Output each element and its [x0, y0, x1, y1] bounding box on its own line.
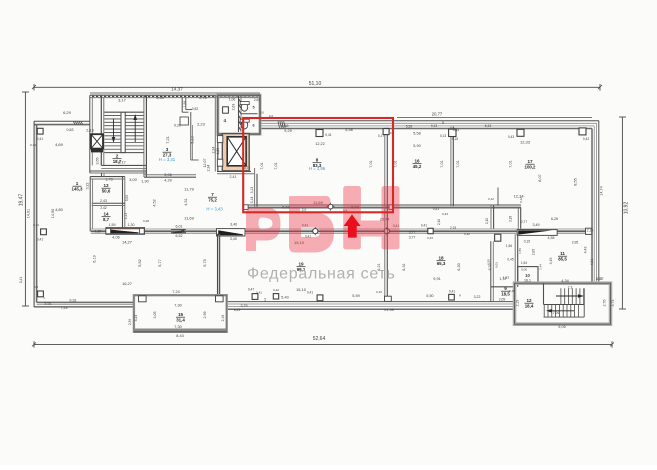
svg-text:12,22: 12,22	[315, 142, 325, 146]
svg-text:10,92: 10,92	[624, 202, 630, 215]
svg-text:0,79: 0,79	[244, 166, 250, 170]
svg-text:4,06: 4,06	[112, 236, 119, 240]
svg-text:3,79: 3,79	[241, 304, 248, 308]
svg-text:4,52: 4,52	[153, 199, 157, 206]
svg-text:5,77: 5,77	[158, 259, 162, 266]
svg-text:7,06: 7,06	[553, 311, 559, 315]
svg-text:6,43: 6,43	[234, 308, 241, 312]
svg-text:1,23: 1,23	[216, 148, 220, 154]
svg-text:2,23: 2,23	[197, 122, 206, 127]
svg-text:2,63: 2,63	[232, 104, 236, 111]
svg-text:11: 11	[560, 251, 565, 256]
svg-text:2,85: 2,85	[532, 249, 536, 256]
svg-text:0,45: 0,45	[509, 289, 515, 293]
svg-text:0,45: 0,45	[507, 257, 513, 261]
svg-text:5,75: 5,75	[203, 259, 207, 266]
svg-text:52,64: 52,64	[313, 336, 326, 342]
svg-text:3,74: 3,74	[611, 300, 615, 307]
svg-text:1,54: 1,54	[521, 261, 527, 265]
svg-text:5: 5	[252, 106, 254, 110]
svg-text:2: 2	[116, 154, 119, 159]
svg-text:1,90: 1,90	[141, 180, 148, 184]
svg-text:51,10: 51,10	[309, 81, 322, 87]
svg-text:11,79: 11,79	[184, 187, 194, 192]
svg-text:2,39: 2,39	[128, 319, 132, 325]
svg-text:0,15: 0,15	[524, 240, 531, 244]
svg-text:7: 7	[211, 192, 214, 197]
svg-text:7,3: 7,3	[568, 286, 573, 290]
svg-text:7,21: 7,21	[165, 135, 170, 144]
svg-text:5,59: 5,59	[352, 294, 359, 298]
svg-text:3,18: 3,18	[509, 216, 513, 222]
svg-text:2,43: 2,43	[100, 199, 107, 203]
svg-text:5,58: 5,58	[345, 128, 352, 132]
svg-text:5,09: 5,09	[125, 195, 129, 201]
svg-text:15: 15	[178, 312, 184, 317]
svg-text:4,69: 4,69	[55, 142, 64, 147]
svg-text:1,59: 1,59	[109, 223, 116, 227]
svg-text:3,05: 3,05	[153, 312, 157, 319]
svg-text:0,13: 0,13	[431, 124, 437, 128]
svg-text:8,55: 8,55	[574, 178, 578, 185]
svg-text:3,17: 3,17	[118, 98, 127, 103]
svg-text:2,15: 2,15	[450, 226, 456, 230]
svg-text:8,43: 8,43	[176, 334, 183, 338]
svg-text:11,69: 11,69	[184, 216, 194, 221]
svg-text:0,41: 0,41	[421, 224, 427, 228]
svg-text:6,29: 6,29	[63, 110, 72, 115]
svg-text:3,13: 3,13	[250, 187, 254, 194]
svg-text:1,06: 1,06	[229, 98, 236, 102]
svg-text:6,52: 6,52	[176, 234, 183, 238]
svg-text:9,91: 9,91	[44, 302, 51, 306]
svg-text:0,17: 0,17	[378, 134, 384, 138]
svg-text:8,7: 8,7	[103, 217, 110, 222]
svg-text:0,42: 0,42	[464, 232, 470, 236]
svg-text:6,19: 6,19	[93, 255, 97, 262]
svg-text:0,16: 0,16	[376, 290, 382, 294]
svg-text:0,42: 0,42	[583, 137, 589, 141]
svg-text:1,57: 1,57	[503, 276, 510, 280]
svg-text:3,14: 3,14	[250, 197, 254, 204]
svg-text:3,77: 3,77	[409, 236, 416, 240]
svg-text:2,10: 2,10	[437, 219, 441, 225]
svg-text:1,59: 1,59	[183, 101, 187, 108]
svg-text:14: 14	[103, 212, 109, 217]
svg-text:H = 2,96: H = 2,96	[309, 166, 326, 171]
svg-text:0,41: 0,41	[30, 143, 36, 147]
svg-text:5,58: 5,58	[413, 132, 420, 136]
svg-text:5,40: 5,40	[281, 295, 288, 299]
svg-text:6,26: 6,26	[551, 217, 558, 221]
svg-text:3,06: 3,06	[164, 173, 171, 177]
svg-text:0,43: 0,43	[427, 236, 433, 240]
svg-text:0,63: 0,63	[67, 128, 74, 132]
svg-text:0,41: 0,41	[37, 238, 43, 242]
svg-text:3,40: 3,40	[230, 237, 237, 241]
svg-text:0,41: 0,41	[256, 290, 262, 294]
svg-text:5,50: 5,50	[426, 294, 433, 298]
svg-text:1,56: 1,56	[506, 244, 512, 248]
svg-text:2,95: 2,95	[572, 241, 579, 245]
svg-text:12,33: 12,33	[520, 140, 531, 145]
svg-text:50,6: 50,6	[102, 188, 111, 193]
svg-text:2,34: 2,34	[207, 165, 211, 172]
svg-text:4,80: 4,80	[55, 207, 64, 212]
svg-text:9,05: 9,05	[558, 325, 565, 329]
svg-text:7,23: 7,23	[61, 306, 68, 310]
svg-text:Федеральная сеть: Федеральная сеть	[247, 266, 396, 283]
svg-text:д: д	[459, 293, 461, 297]
svg-text:7,01: 7,01	[260, 162, 264, 169]
svg-text:10: 10	[525, 273, 530, 278]
svg-text:2,77: 2,77	[521, 220, 527, 224]
svg-text:2,63: 2,63	[254, 98, 260, 102]
svg-text:1,30: 1,30	[128, 223, 135, 227]
svg-text:7,30: 7,30	[174, 325, 181, 329]
svg-text:3,00: 3,00	[129, 177, 138, 182]
svg-text:3,22: 3,22	[474, 295, 481, 299]
svg-text:0,4: 0,4	[34, 285, 39, 289]
svg-text:2,19: 2,19	[587, 229, 594, 233]
svg-text:5,53: 5,53	[282, 205, 289, 209]
svg-text:H = 3,43: H = 3,43	[206, 206, 223, 211]
svg-text:14,27: 14,27	[122, 240, 133, 245]
svg-text:3,14: 3,14	[453, 128, 460, 132]
svg-text:8: 8	[442, 121, 444, 125]
svg-text:14,37: 14,37	[171, 87, 183, 92]
svg-text:0,41: 0,41	[33, 223, 39, 227]
svg-text:8,07: 8,07	[538, 174, 542, 181]
svg-text:8: 8	[316, 158, 319, 163]
svg-text:6,01: 6,01	[176, 225, 183, 229]
svg-text:7,01: 7,01	[394, 160, 398, 167]
svg-text:4,29: 4,29	[164, 179, 171, 183]
svg-text:16,27: 16,27	[122, 281, 133, 286]
svg-text:4: 4	[224, 118, 227, 123]
svg-text:H = 3,31: H = 3,31	[159, 157, 176, 162]
svg-text:1: 1	[76, 181, 79, 186]
svg-text:4,43: 4,43	[584, 247, 588, 254]
svg-text:3,0: 3,0	[260, 111, 265, 115]
svg-text:9,29: 9,29	[284, 129, 291, 133]
svg-text:0,42: 0,42	[273, 288, 279, 292]
svg-text:7,01: 7,01	[274, 162, 278, 169]
svg-text:2,09: 2,09	[499, 297, 506, 301]
svg-text:5,90: 5,90	[413, 144, 420, 148]
svg-text:0,13: 0,13	[440, 134, 446, 138]
svg-text:3,17: 3,17	[118, 161, 125, 165]
svg-text:0,47: 0,47	[248, 288, 254, 292]
svg-text:2,24: 2,24	[212, 147, 216, 154]
svg-text:2,10: 2,10	[485, 218, 489, 224]
svg-text:7,01: 7,01	[509, 160, 513, 167]
svg-text:6,03: 6,03	[495, 262, 499, 268]
svg-text:145,3: 145,3	[72, 186, 84, 191]
svg-text:0,16: 0,16	[452, 137, 458, 141]
svg-text:2,55: 2,55	[487, 259, 491, 265]
svg-text:4,34: 4,34	[561, 279, 568, 283]
svg-text:0,41: 0,41	[449, 289, 455, 293]
svg-text:17: 17	[527, 159, 533, 164]
svg-text:2,19: 2,19	[516, 300, 520, 307]
svg-text:0,12: 0,12	[488, 197, 494, 201]
svg-text:6,31: 6,31	[402, 263, 406, 270]
svg-text:0,43: 0,43	[508, 135, 514, 139]
svg-text:9,91: 9,91	[69, 299, 76, 303]
svg-text:5,58: 5,58	[282, 124, 289, 128]
svg-text:100,2: 100,2	[525, 164, 537, 169]
svg-text:0,41: 0,41	[37, 137, 43, 141]
svg-text:0,41: 0,41	[433, 207, 440, 211]
svg-text:13: 13	[103, 183, 109, 188]
svg-text:5,59: 5,59	[406, 125, 413, 129]
svg-text:7,30: 7,30	[174, 304, 181, 308]
svg-text:14,91: 14,91	[27, 209, 31, 219]
svg-text:1,56: 1,56	[518, 248, 522, 254]
svg-text:7,01: 7,01	[456, 160, 460, 167]
svg-text:5,06: 5,06	[521, 268, 527, 272]
svg-text:3,77: 3,77	[409, 230, 416, 234]
svg-text:1,35: 1,35	[95, 230, 101, 234]
svg-text:2,42: 2,42	[100, 206, 107, 210]
svg-text:6: 6	[252, 124, 254, 128]
svg-text:14,74: 14,74	[600, 186, 604, 196]
svg-text:1,37: 1,37	[596, 277, 603, 281]
svg-text:12: 12	[526, 298, 532, 303]
svg-text:6,30: 6,30	[457, 263, 461, 270]
svg-text:16,1: 16,1	[524, 279, 531, 283]
svg-text:7,01: 7,01	[369, 160, 373, 167]
svg-text:4,31: 4,31	[590, 259, 594, 266]
svg-text:7,24: 7,24	[172, 290, 179, 294]
svg-text:0,12: 0,12	[519, 197, 523, 203]
svg-text:2,75: 2,75	[199, 96, 206, 100]
svg-text:31,4: 31,4	[176, 317, 185, 322]
svg-text:3,23: 3,23	[134, 315, 138, 322]
svg-text:2,41: 2,41	[230, 175, 237, 179]
svg-text:0,52: 0,52	[192, 107, 199, 111]
svg-text:3,33: 3,33	[156, 96, 163, 100]
svg-text:4,55: 4,55	[548, 236, 555, 240]
svg-text:0,28: 0,28	[143, 219, 149, 223]
svg-text:21,98: 21,98	[384, 308, 394, 312]
svg-text:14,90: 14,90	[51, 209, 55, 219]
svg-text:9,22: 9,22	[86, 183, 90, 190]
svg-text:4,45: 4,45	[549, 258, 553, 265]
svg-text:75,2: 75,2	[208, 197, 217, 202]
svg-text:2,99: 2,99	[203, 312, 207, 319]
svg-text:3,65: 3,65	[96, 158, 100, 165]
svg-text:85,5: 85,5	[558, 256, 567, 261]
svg-text:19,47: 19,47	[19, 194, 25, 207]
svg-text:0,41: 0,41	[19, 277, 23, 283]
svg-text:2,13: 2,13	[86, 129, 93, 133]
svg-text:18,4: 18,4	[525, 303, 534, 308]
svg-text:2,0: 2,0	[302, 208, 307, 212]
svg-text:9: 9	[504, 286, 507, 291]
svg-text:4,51: 4,51	[184, 198, 188, 205]
svg-text:15,10: 15,10	[296, 287, 307, 292]
svg-text:0,41: 0,41	[325, 133, 332, 137]
svg-text:3,40: 3,40	[230, 222, 237, 226]
svg-text:65,3: 65,3	[437, 261, 446, 266]
svg-text:3,49: 3,49	[533, 223, 540, 227]
svg-text:16: 16	[414, 159, 420, 164]
svg-text:3: 3	[166, 147, 169, 152]
svg-text:1,44: 1,44	[539, 264, 543, 270]
svg-text:7,01: 7,01	[440, 160, 444, 167]
svg-text:0,43: 0,43	[442, 212, 448, 216]
svg-text:5,52: 5,52	[138, 259, 142, 266]
svg-text:45,2: 45,2	[413, 164, 422, 169]
svg-text:9,91: 9,91	[433, 277, 440, 281]
svg-text:0,2: 0,2	[263, 298, 267, 303]
svg-text:2,19: 2,19	[221, 315, 225, 322]
svg-text:6,13: 6,13	[485, 124, 492, 128]
svg-text:20,77: 20,77	[432, 112, 443, 117]
svg-text:18: 18	[438, 256, 444, 261]
svg-text:2,13: 2,13	[124, 213, 128, 220]
svg-text:2,76: 2,76	[603, 300, 607, 307]
svg-text:0,41: 0,41	[307, 291, 313, 295]
